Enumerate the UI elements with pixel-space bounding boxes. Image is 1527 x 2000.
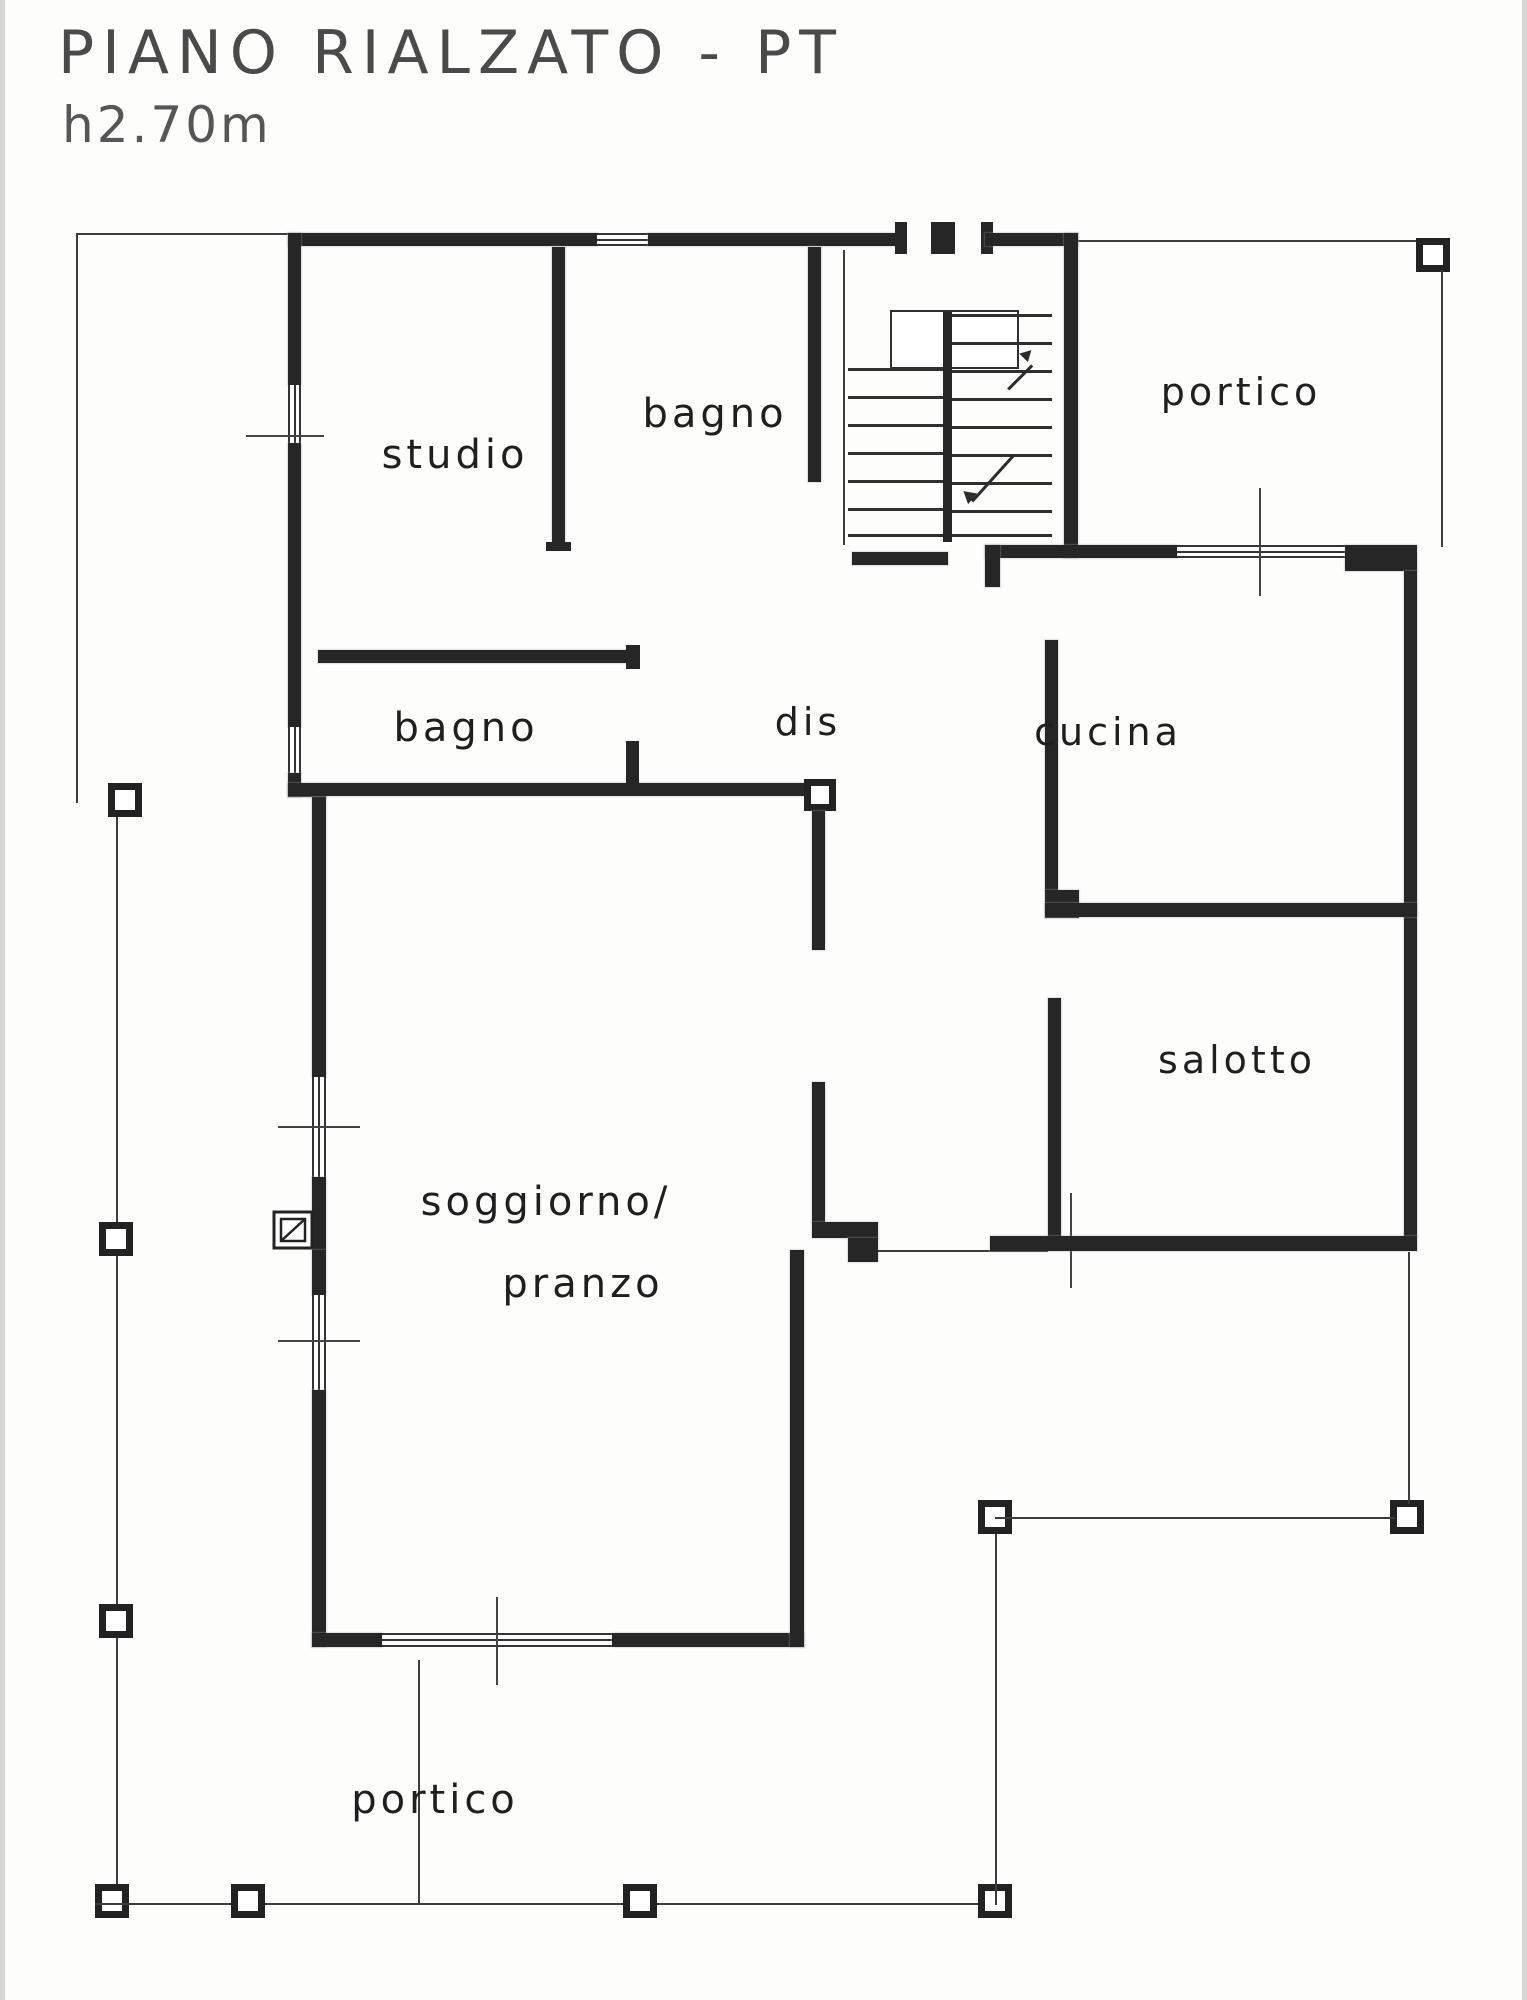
stair-step [952, 342, 1052, 345]
stair-step [952, 534, 1052, 537]
portico-column [95, 1884, 129, 1918]
wall-salotto-bottom [990, 1236, 1417, 1251]
wall-dis-soggiorno-lower [812, 1082, 825, 1222]
stair-step [952, 454, 1052, 457]
dimension-tick [278, 1340, 360, 1342]
stair-step [848, 452, 945, 455]
wall-stairhall-stub [852, 552, 948, 565]
scan-edge-left [0, 0, 5, 2000]
wall-corner-block-ne [1345, 545, 1417, 571]
dimension-tick [246, 435, 324, 437]
wall-cucina-bottom [1045, 903, 1417, 917]
floor-plan-page: PIANO RIALZATO - PT h2.70m [0, 0, 1527, 2000]
window-soggiorno-2 [312, 1295, 326, 1390]
stair-rail [943, 312, 952, 542]
portico-column [623, 1884, 657, 1918]
portico-top-edge [1078, 240, 1420, 242]
room-label-cucina: cucina [1034, 710, 1182, 754]
portico-column [1416, 238, 1450, 272]
window-bagno-left [288, 727, 301, 773]
portico-column [99, 1604, 133, 1638]
stair-step [848, 396, 945, 399]
ceiling-height-note: h2.70m [62, 96, 272, 154]
entry-door-mullion [931, 222, 955, 254]
stair-step [952, 398, 1052, 401]
stairwell-inner-line [843, 250, 845, 545]
wall-studio-bagno [552, 247, 565, 550]
wall-soggiorno-left-4 [312, 1390, 326, 1647]
stair-step [848, 368, 945, 371]
window-top-bagno [597, 233, 648, 246]
stair-step [952, 510, 1052, 513]
portico-column [231, 1884, 265, 1918]
page-title: PIANO RIALZATO - PT [58, 18, 844, 88]
room-label-bagno-top: bagno [642, 391, 787, 437]
room-label-soggiorno: soggiorno/ [421, 1179, 672, 1225]
stair-step [848, 508, 945, 511]
stair-arrow-head [959, 486, 977, 504]
room-label-pranzo: pranzo [502, 1261, 663, 1307]
wall-cucina-top-1 [985, 545, 1177, 558]
portico-edge-left-lower [116, 817, 118, 1893]
entry-door-jamb [895, 222, 907, 254]
wall-top-1 [288, 233, 597, 246]
room-label-bagno-mid: bagno [393, 705, 538, 751]
wall-soggiorno-corner [812, 1222, 878, 1238]
portico-edge-top-left [76, 233, 288, 235]
wall-bagno-stair [808, 247, 821, 482]
stair-arrow-head [1019, 346, 1035, 362]
portico-column [108, 783, 142, 817]
window-cucina-portico [1177, 545, 1345, 558]
stair-landing [890, 310, 1019, 369]
stair-step [952, 426, 1052, 429]
fireplace-symbol [272, 1210, 314, 1250]
stair-step [952, 370, 1052, 373]
wall-left-1 [288, 233, 301, 385]
wall-soggiorno-right-lower [790, 1250, 804, 1647]
wall-salotto-left [1048, 998, 1061, 1236]
portico-column [99, 1222, 133, 1256]
portico-right-edge [1441, 270, 1443, 547]
dimension-tick [278, 1126, 360, 1128]
portico-edge-right-lower [995, 1534, 997, 1905]
dimension-tick [1259, 488, 1261, 596]
portico-column [1390, 1500, 1424, 1534]
wall-soggiorno-left-3 [312, 1250, 326, 1295]
wall-bagno-mid-top [318, 650, 630, 663]
wall-soggiorno-bottom-2 [612, 1633, 804, 1647]
portico-edge-mid-right [995, 1517, 1395, 1519]
wall-left-2 [288, 443, 301, 727]
portico-edge-salotto-right [1408, 1252, 1410, 1504]
stair-step [848, 534, 945, 537]
wall-soggiorno-left-2 [312, 1177, 326, 1250]
room-label-portico-top: portico [1161, 370, 1322, 414]
room-label-dis: dis [775, 700, 841, 744]
door-jamb-cap [546, 542, 571, 551]
portico-edge-left-upper [76, 233, 78, 803]
wall-bagno-mid-bottom [288, 783, 812, 796]
stair-step [848, 424, 945, 427]
wall-stairhall-corner [985, 545, 1000, 587]
structural-pillar [804, 779, 836, 811]
wall-dis-soggiorno-upper [812, 811, 825, 950]
stair-step [952, 482, 1052, 485]
wall-soggiorno-bottom-1 [312, 1633, 382, 1647]
wall-portico-left [1064, 233, 1078, 558]
wall-cucina-left [1045, 640, 1058, 890]
dimension-tick [496, 1597, 498, 1685]
wall-top-2 [648, 233, 905, 246]
wall-soggiorno-left-1 [312, 797, 326, 1077]
door-jamb-cap [626, 645, 640, 669]
door-jamb-cap [626, 741, 639, 783]
stair-step [848, 480, 945, 483]
wall-soggiorno-corner-step [848, 1238, 878, 1262]
stair-step [952, 314, 1052, 317]
stair-direction-arrow [971, 454, 1014, 502]
scan-edge-right [1522, 0, 1527, 2000]
room-label-portico-bottom: portico [351, 1777, 519, 1823]
room-label-salotto: salotto [1158, 1038, 1316, 1082]
room-label-studio: studio [382, 432, 529, 478]
